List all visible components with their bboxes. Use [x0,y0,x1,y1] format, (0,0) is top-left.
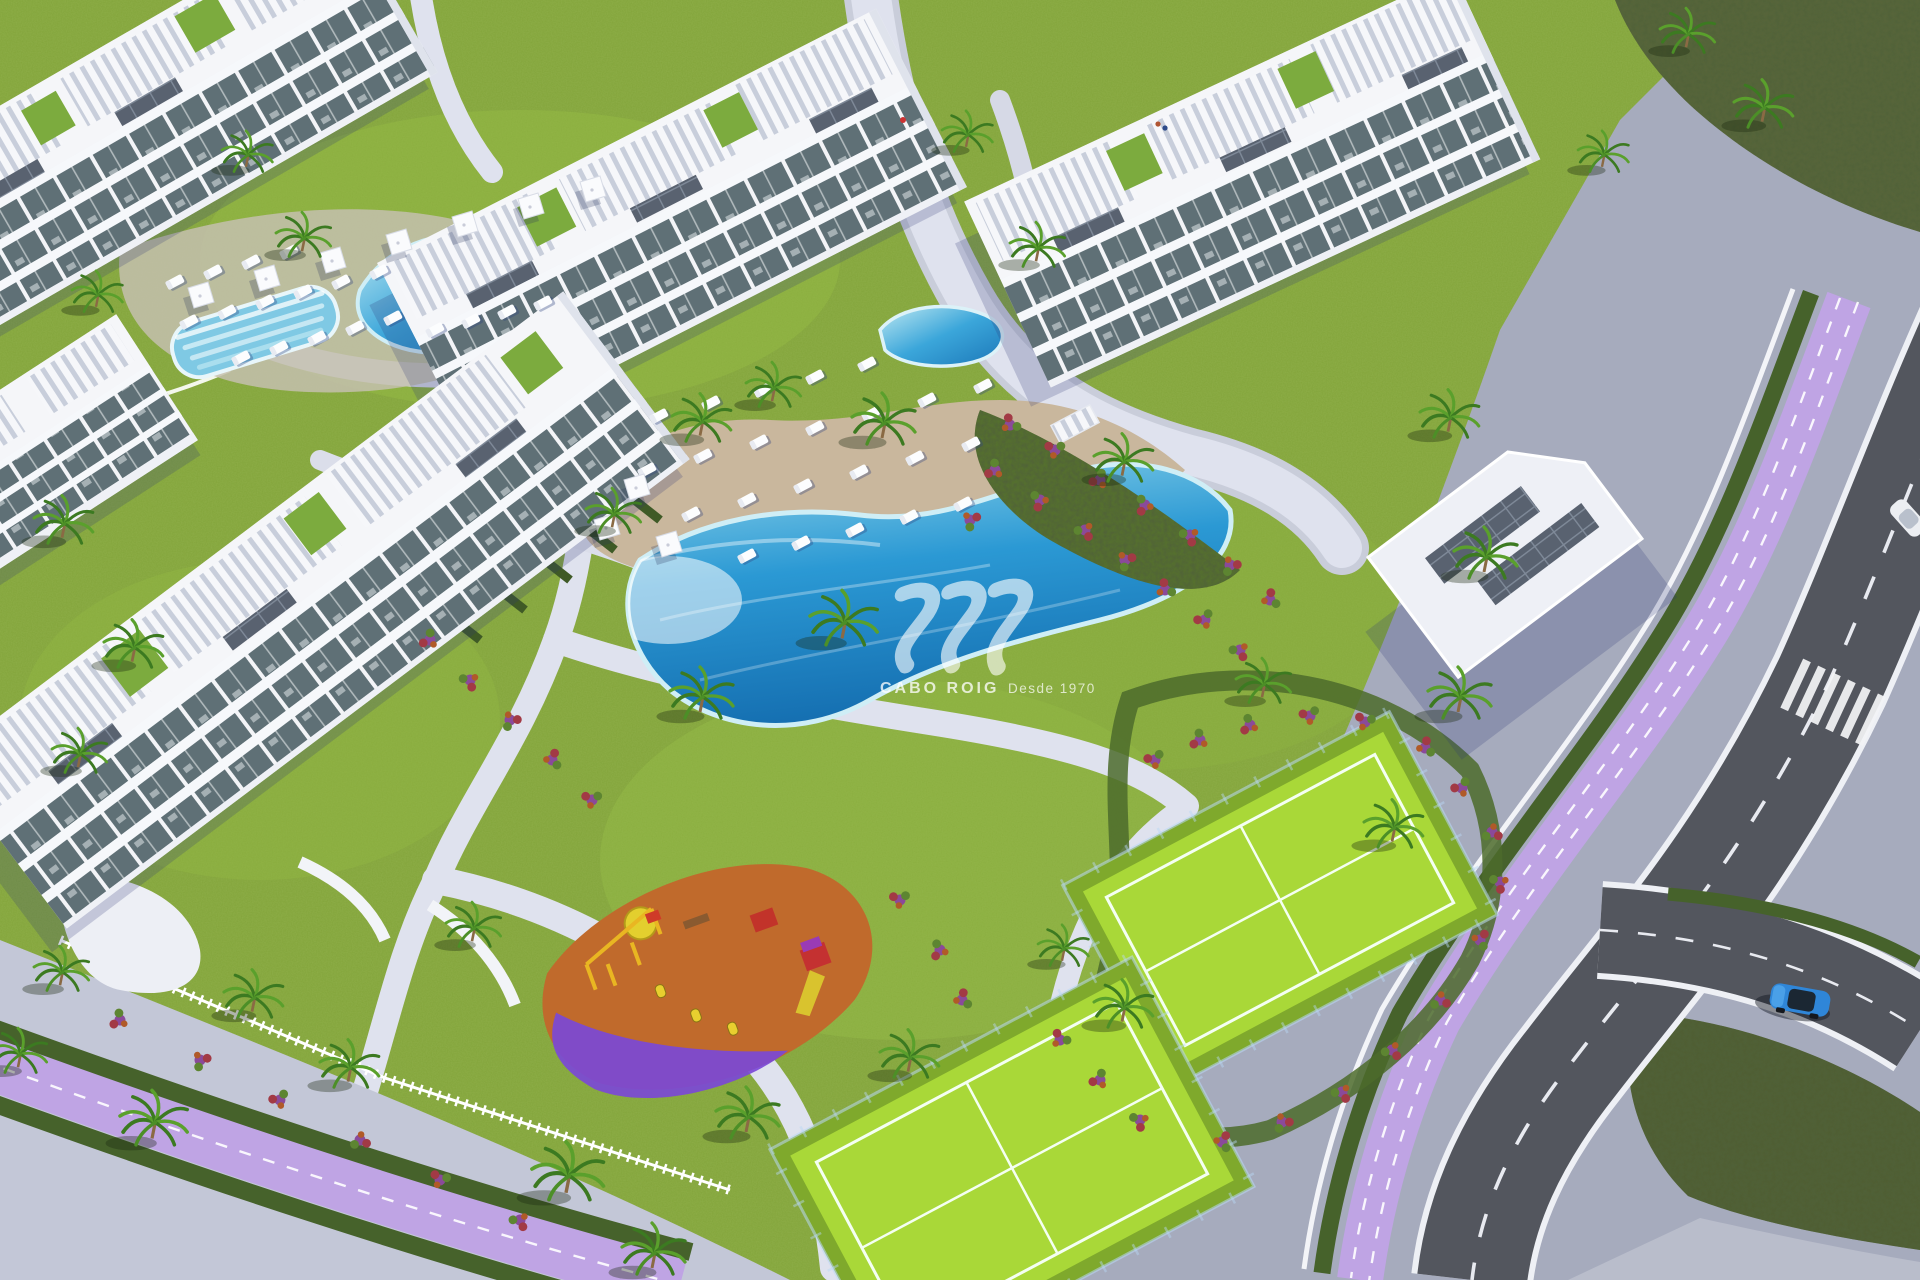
person [1162,125,1167,130]
watermark-subtitle: Desde 1970 [1008,681,1096,696]
watermark-title: CABO ROIG [880,680,999,697]
render-canvas: CABO ROIG Desde 1970 [0,0,1920,1280]
person [1155,121,1160,126]
garden-pond [880,307,1002,367]
person [900,117,906,123]
aerial-render: CABO ROIG Desde 1970 [0,0,1920,1280]
